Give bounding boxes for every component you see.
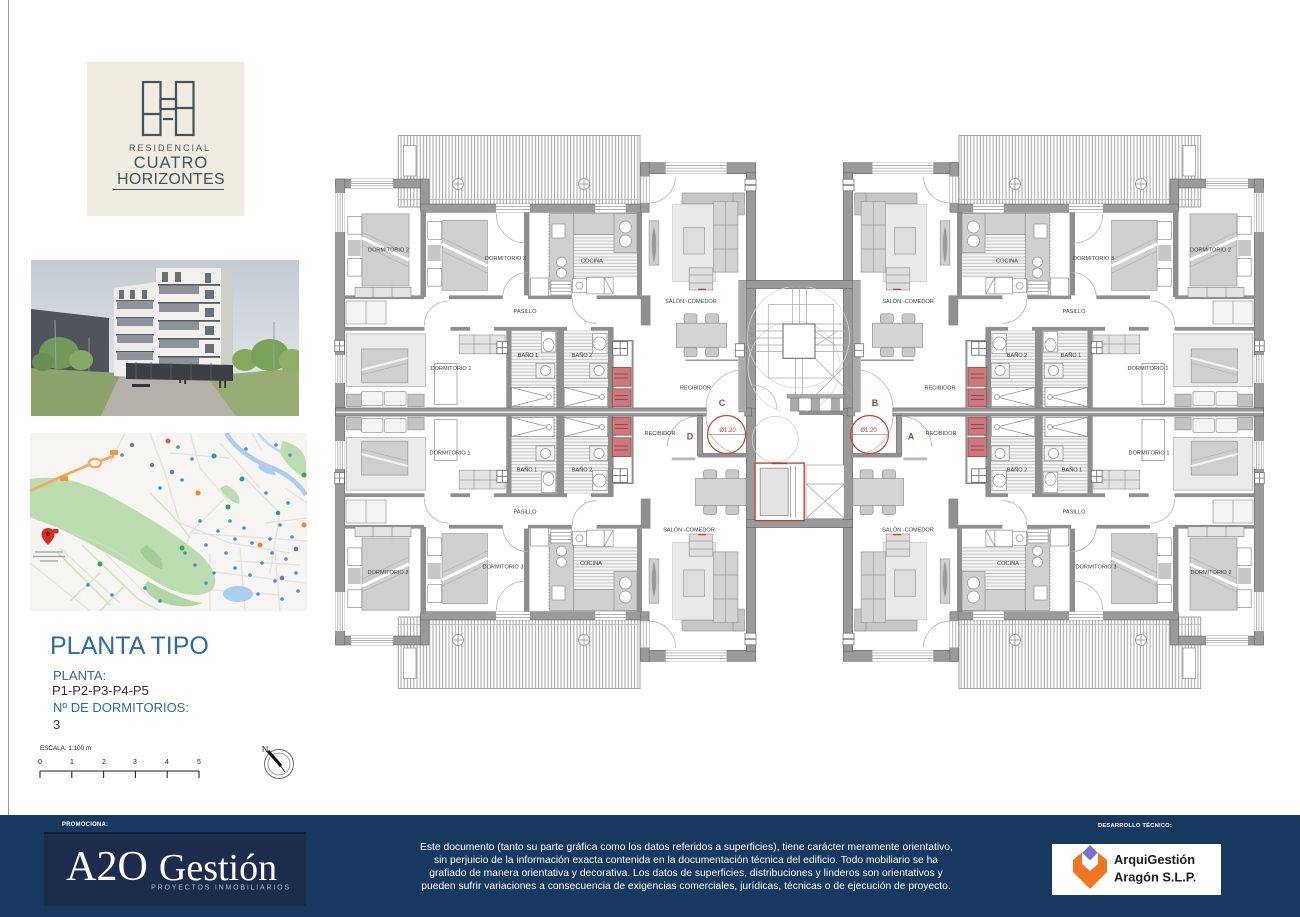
- svg-text:SALÓN -COMEDOR: SALÓN -COMEDOR: [882, 527, 934, 534]
- svg-text:BAÑO 2: BAÑO 2: [572, 467, 593, 474]
- svg-text:C: C: [719, 398, 726, 408]
- svg-text:A: A: [908, 432, 915, 442]
- svg-text:DORMITORIO 2: DORMITORIO 2: [368, 570, 409, 576]
- svg-text:DORMITORIO 3: DORMITORIO 3: [1076, 565, 1117, 571]
- svg-text:PASILLO: PASILLO: [514, 309, 538, 315]
- svg-text:RECIBIDOR: RECIBIDOR: [925, 431, 956, 437]
- svg-text:COCINA: COCINA: [581, 259, 603, 265]
- svg-text:DORMITORIO 2: DORMITORIO 2: [1190, 248, 1231, 254]
- svg-text:Ø1.20: Ø1.20: [860, 428, 877, 434]
- svg-text:DORMITORIO 1: DORMITORIO 1: [430, 451, 471, 457]
- svg-text:RECIBIDOR: RECIBIDOR: [680, 386, 711, 392]
- svg-text:SALÓN -COMEDOR: SALÓN -COMEDOR: [665, 298, 717, 305]
- svg-text:DORMITORIO 3: DORMITORIO 3: [483, 565, 524, 571]
- svg-text:BAÑO 2: BAÑO 2: [1007, 352, 1028, 359]
- svg-text:RECIBIDOR: RECIBIDOR: [924, 386, 955, 392]
- svg-text:COCINA: COCINA: [996, 259, 1018, 265]
- svg-text:BAÑO 1: BAÑO 1: [1061, 352, 1082, 359]
- svg-text:BAÑO 2: BAÑO 2: [572, 352, 593, 359]
- svg-text:PASILLO: PASILLO: [1063, 510, 1087, 516]
- svg-text:PASILLO: PASILLO: [1063, 309, 1087, 315]
- svg-text:BAÑO 2: BAÑO 2: [1007, 467, 1028, 474]
- svg-text:RECIBIDOR: RECIBIDOR: [644, 431, 675, 437]
- svg-text:BAÑO 1: BAÑO 1: [518, 352, 539, 359]
- svg-text:COCINA: COCINA: [997, 561, 1019, 567]
- svg-text:DORMITORIO 1: DORMITORIO 1: [1129, 451, 1170, 457]
- svg-text:D: D: [687, 432, 694, 442]
- svg-text:BAÑO 1: BAÑO 1: [517, 467, 538, 474]
- svg-text:DORMITORIO 1: DORMITORIO 1: [431, 366, 472, 372]
- svg-text:PASILLO: PASILLO: [514, 510, 538, 516]
- svg-text:Ø1.20: Ø1.20: [719, 428, 736, 434]
- svg-text:SALÓN -COMEDOR: SALÓN -COMEDOR: [882, 298, 934, 305]
- svg-text:DORMITORIO 3: DORMITORIO 3: [1073, 256, 1114, 262]
- svg-text:DORMITORIO 3: DORMITORIO 3: [485, 256, 526, 262]
- svg-text:B: B: [872, 398, 879, 408]
- svg-text:DORMITORIO 1: DORMITORIO 1: [1128, 366, 1169, 372]
- svg-text:COCINA: COCINA: [580, 561, 602, 567]
- svg-text:DORMITORIO 2: DORMITORIO 2: [1191, 570, 1232, 576]
- svg-text:DORMITORIO 2: DORMITORIO 2: [368, 248, 409, 254]
- svg-text:BAÑO 1: BAÑO 1: [1062, 467, 1083, 474]
- svg-text:SALÓN -COMEDOR: SALÓN -COMEDOR: [663, 527, 715, 534]
